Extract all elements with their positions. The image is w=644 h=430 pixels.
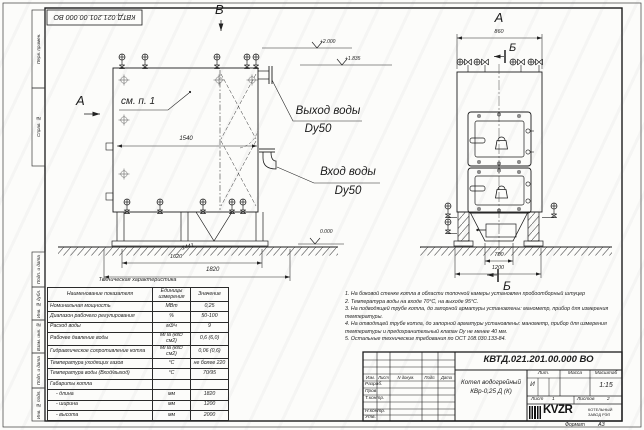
row-label-nkontr: Н.контр. — [365, 410, 385, 415]
col-header-izm: Изм. — [364, 376, 377, 380]
row-label-prov: Пров. — [365, 390, 378, 395]
mass-label: Масса — [560, 372, 590, 377]
table-row: Температура воды (Вход/выход)°С70/95 — [48, 369, 229, 379]
side-view — [445, 59, 557, 254]
dim-860: 860 — [484, 30, 514, 36]
kvzr-logo-mark — [529, 406, 541, 419]
col-header-podp: Подп. — [422, 376, 438, 380]
table-row: Расход водым3/ч9 — [48, 322, 229, 332]
view-label-a: А — [487, 11, 511, 24]
elevation-0000: 0.000 — [320, 230, 333, 235]
see-note-label: см. п. 1 — [121, 97, 155, 107]
section-label-b-top: Б — [509, 43, 516, 54]
table-row: Гидравлическое сопротивление котлаМПа (к… — [48, 346, 229, 359]
table-row: Номинальная мощностьМВт0,25 — [48, 302, 229, 312]
frame-label-vzam-inv: Взам. инв. № — [32, 320, 45, 353]
doc-title-line2: КВр-0,25 Д (К) — [456, 389, 526, 395]
lit-label: Лит. — [527, 372, 560, 377]
col-header-data: Дата — [438, 376, 455, 380]
note-item: 3. На подводящей трубе котла, до запорно… — [345, 306, 618, 321]
view-arrow-label-a: А — [76, 94, 85, 107]
lit-value: И — [527, 382, 538, 389]
format-label: Формат — [565, 423, 585, 428]
table-row: - высотамм2000 — [48, 411, 229, 421]
row-label-tkontr: Т.контр. — [365, 397, 384, 402]
sheets-value: 2 — [607, 398, 610, 403]
dim-1200: 1200 — [481, 266, 515, 272]
inlet-dy-label: Dy50 — [324, 186, 372, 198]
table-row: Габариты котла — [48, 379, 229, 389]
note-item: 4. На отводящей трубе котла, до запорной… — [345, 321, 618, 336]
table-row: Диапазон рабочего регулирования%50-100 — [48, 312, 229, 322]
tech-table-title: Техническая характеристика — [47, 278, 228, 284]
tech-table: Наименование показателя Единицы измерени… — [47, 287, 229, 421]
frame-label-inv-podl: Инв. № подл. — [32, 388, 45, 421]
frame-label-perv-primen: Перв. примен. — [32, 10, 45, 88]
front-view — [106, 54, 276, 246]
frame-label-inv-dubl: Инв. № дубл. — [32, 287, 45, 320]
col-header-ndokum: N докум. — [390, 376, 422, 380]
format-value: А3 — [598, 423, 605, 429]
outlet-label: Выход воды — [292, 106, 364, 118]
row-label-razrab: Разраб. — [365, 383, 382, 388]
notes-list: 1. На боковой стенке котла в области топ… — [345, 291, 618, 344]
dim-1540: 1540 — [166, 136, 206, 142]
doc-number: КВТД.021.201.00.000 ВО — [457, 355, 620, 365]
frame-label-sprav-n: Справ. № — [32, 88, 45, 166]
tech-table-header-row: Наименование показателя Единицы измерени… — [48, 288, 229, 302]
frame-label-podp-data-2: Подп. и дата — [32, 353, 45, 388]
drawing-sheet: КВТД.021.201.00.000 ВО Перв. примен. Спр… — [0, 0, 644, 430]
outlet-dy-label: Dy50 — [292, 124, 344, 136]
col-header-list: Лист — [377, 376, 390, 380]
table-row: - ширинамм1200 — [48, 400, 229, 410]
elevation-1835: +1.835 — [345, 57, 360, 62]
table-row: Температура уходящих газов°Сне более 220 — [48, 359, 229, 369]
dim-1820: 1820 — [206, 267, 219, 273]
table-row: - длинамм1820 — [48, 390, 229, 400]
note-item: 2. Температура воды на входе 70°С, на вы… — [345, 299, 618, 307]
sheet-label: Лист — [531, 398, 543, 403]
kvzr-logo: KVZR — [543, 404, 572, 416]
row-label-utv: Утв. — [365, 416, 376, 421]
company-name-line2: ЗАВОД РЭП — [588, 412, 610, 417]
dim-700: 700 — [485, 253, 513, 259]
frame-label-podp-data-1: Подп. и дата — [32, 252, 45, 287]
note-item: 1. На боковой стенке котла в области топ… — [345, 291, 618, 299]
dim-1620: 1620 — [170, 255, 182, 261]
scale-value: 1:15 — [590, 382, 622, 389]
top-stamp: КВТД.021.201.00.000 ВО — [47, 10, 142, 25]
inlet-label: Вход воды — [314, 167, 382, 179]
ground-hatching — [58, 247, 612, 256]
note-item: 5. Остальные технические требования по О… — [345, 336, 618, 344]
scale-label: Масштаб — [590, 372, 622, 377]
doc-title-line1: Котел водогрейный — [456, 380, 526, 386]
sheet-value: 1 — [552, 398, 555, 403]
view-label-v: В — [215, 3, 224, 16]
table-row: Рабочее давление водыМПа (кгс/см2)0,6 (6… — [48, 333, 229, 346]
sheets-label: Листов — [577, 398, 594, 403]
elevation-2000: +2.000 — [320, 40, 335, 45]
